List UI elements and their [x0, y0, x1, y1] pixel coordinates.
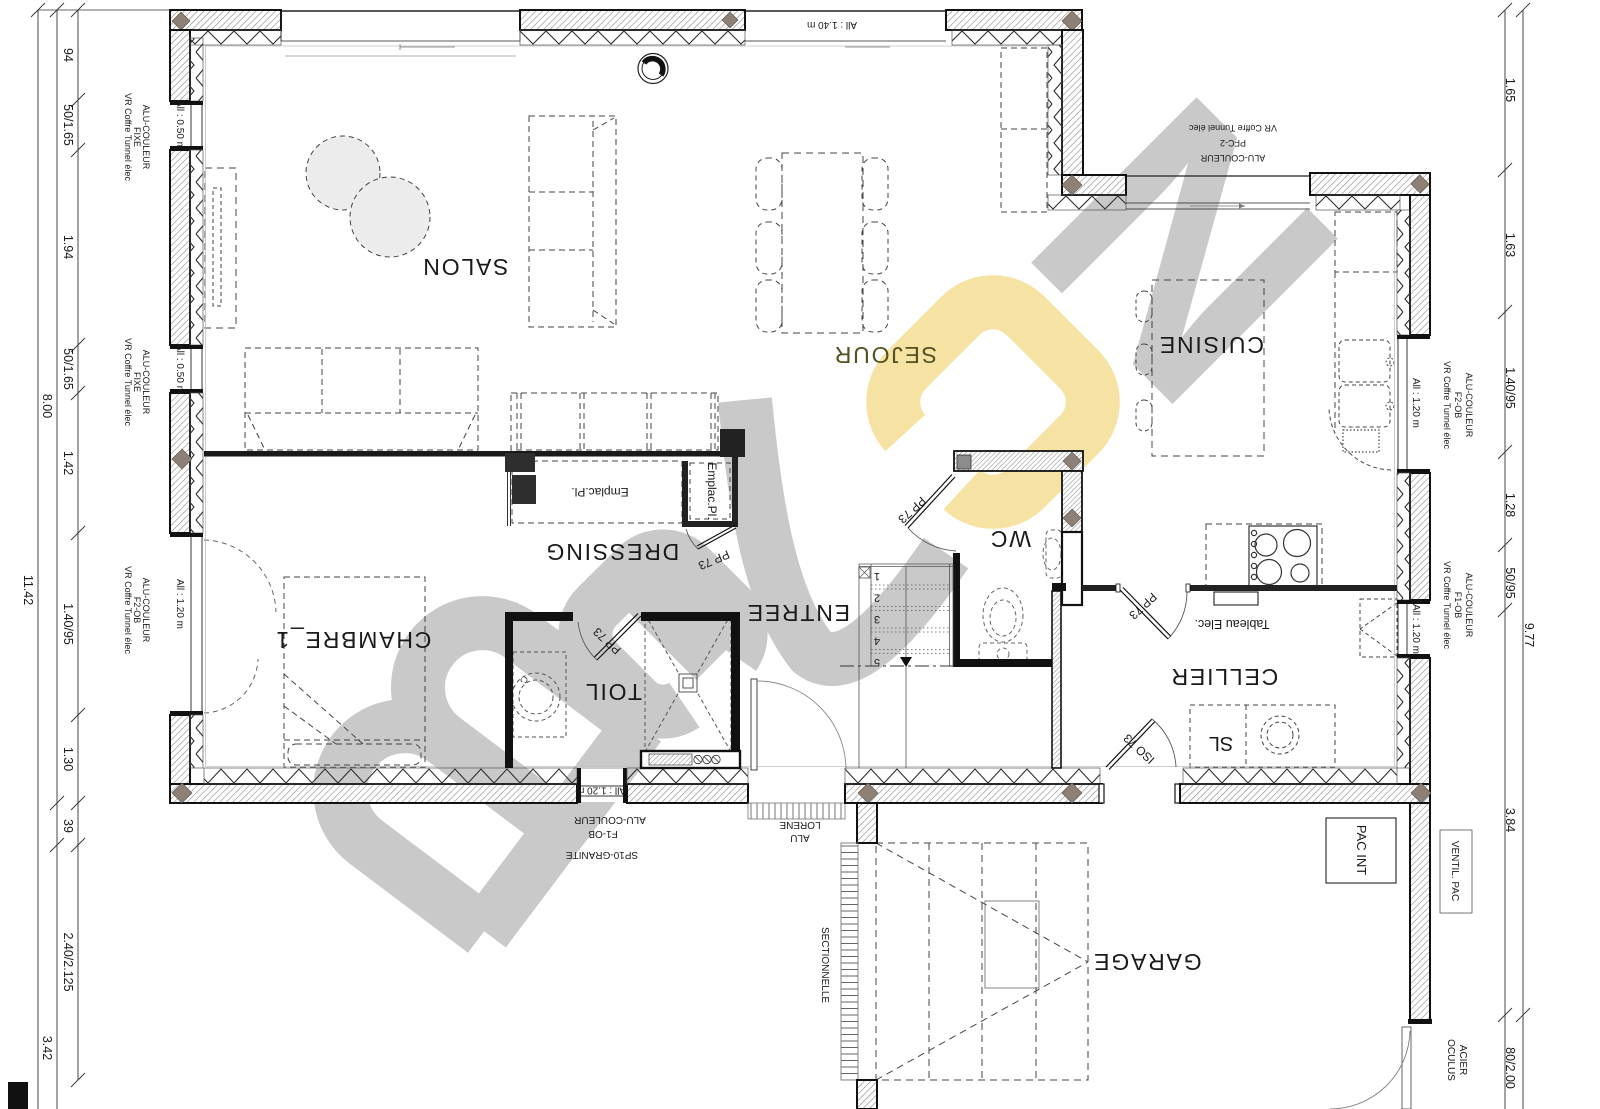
svg-text:1.65: 1.65 [1503, 78, 1517, 102]
svg-text:3.42: 3.42 [40, 1036, 54, 1060]
svg-text:CELLIER: CELLIER [1170, 664, 1278, 690]
svg-text:LORENE: LORENE [779, 819, 820, 830]
svg-text:Tableau Elec.: Tableau Elec. [1194, 617, 1269, 631]
svg-text:2: 2 [874, 592, 880, 604]
svg-text:3.84: 3.84 [1503, 808, 1517, 832]
svg-text:Emplac.Pl.: Emplac.Pl. [705, 462, 719, 519]
svg-text:PFC-2: PFC-2 [1220, 138, 1246, 148]
svg-text:Emplac.Pl.: Emplac.Pl. [571, 485, 628, 499]
svg-text:F2-OB: F2-OB [1453, 392, 1463, 419]
svg-text:All : 0.50 m: All : 0.50 m [174, 344, 185, 394]
svg-text:TOIL: TOIL [584, 679, 642, 705]
svg-text:1.28: 1.28 [1503, 493, 1517, 517]
svg-text:1.94: 1.94 [61, 235, 75, 259]
svg-text:1.30: 1.30 [61, 747, 75, 771]
svg-text:VENTIL. PAC: VENTIL. PAC [1449, 841, 1460, 901]
svg-text:SECTIONNELLE: SECTIONNELLE [819, 927, 830, 1003]
svg-text:F1-OB: F1-OB [588, 828, 618, 839]
svg-text:VR Coffre Tunnel élec: VR Coffre Tunnel élec [1442, 361, 1452, 449]
svg-text:ENTREE: ENTREE [746, 600, 850, 626]
svg-text:1.63: 1.63 [1503, 233, 1517, 257]
svg-text:CHAMBRE_1: CHAMBRE_1 [275, 627, 432, 653]
svg-text:50/1.65: 50/1.65 [61, 104, 75, 146]
svg-text:VR Coffre Tunnel élec: VR Coffre Tunnel élec [123, 338, 133, 426]
svg-text:1.40/95: 1.40/95 [1503, 367, 1517, 409]
svg-text:All : 1.20 m: All : 1.20 m [174, 579, 185, 629]
svg-text:PAC INT: PAC INT [1354, 825, 1369, 875]
svg-text:ALU-COULEUR: ALU-COULEUR [574, 814, 646, 825]
svg-text:All : 1.20 m: All : 1.20 m [1410, 604, 1421, 654]
svg-text:8.00: 8.00 [40, 394, 54, 418]
svg-text:VR Coffre Tunnel élec: VR Coffre Tunnel élec [123, 566, 133, 654]
svg-text:SL: SL [1209, 732, 1233, 754]
svg-text:WC: WC [989, 526, 1031, 552]
svg-text:50/95: 50/95 [1503, 567, 1517, 598]
svg-text:94: 94 [61, 48, 75, 62]
svg-text:ALU-COULEUR: ALU-COULEUR [1200, 153, 1265, 163]
svg-text:2.40/2.125: 2.40/2.125 [61, 932, 75, 991]
svg-text:CUISINE: CUISINE [1158, 332, 1264, 358]
svg-text:DRESSING: DRESSING [545, 539, 680, 565]
svg-text:4: 4 [874, 635, 880, 647]
svg-text:11.42: 11.42 [21, 575, 35, 605]
svg-text:9.77: 9.77 [1522, 623, 1536, 647]
svg-text:All : 1.40 m: All : 1.40 m [807, 19, 857, 30]
svg-text:39: 39 [61, 819, 75, 833]
svg-text:ALU-COULEUR: ALU-COULEUR [1464, 573, 1474, 638]
svg-text:All : 1.20 m: All : 1.20 m [1410, 378, 1421, 428]
svg-text:SEJOUR: SEJOUR [833, 342, 937, 368]
svg-text:ALU: ALU [790, 832, 809, 843]
svg-text:GARAGE: GARAGE [1092, 949, 1201, 975]
svg-text:1: 1 [874, 570, 880, 582]
svg-text:1.40/95: 1.40/95 [61, 603, 75, 645]
svg-text:80/2.00: 80/2.00 [1503, 1047, 1517, 1089]
svg-text:OCULUS: OCULUS [1445, 1039, 1456, 1081]
svg-text:SALON: SALON [422, 254, 509, 280]
svg-text:All : 0.50 m: All : 0.50 m [174, 100, 185, 150]
svg-text:All : 1.20 m: All : 1.20 m [576, 785, 626, 796]
svg-text:ACIER: ACIER [1457, 1045, 1468, 1076]
svg-text:F1-OB: F1-OB [1453, 592, 1463, 619]
svg-text:ALU-COULEUR: ALU-COULEUR [1464, 373, 1474, 438]
svg-text:50/1.65: 50/1.65 [61, 348, 75, 390]
svg-text:1.42: 1.42 [61, 451, 75, 475]
svg-text:VR Coffre Tunnel élec: VR Coffre Tunnel élec [1442, 561, 1452, 649]
svg-text:VR Coffre Tunnel élec: VR Coffre Tunnel élec [123, 93, 133, 181]
svg-text:3: 3 [874, 613, 880, 625]
svg-text:VR Coffre Tunnel élec: VR Coffre Tunnel élec [1189, 123, 1277, 133]
svg-text:SP10-GRANITE: SP10-GRANITE [566, 849, 639, 860]
